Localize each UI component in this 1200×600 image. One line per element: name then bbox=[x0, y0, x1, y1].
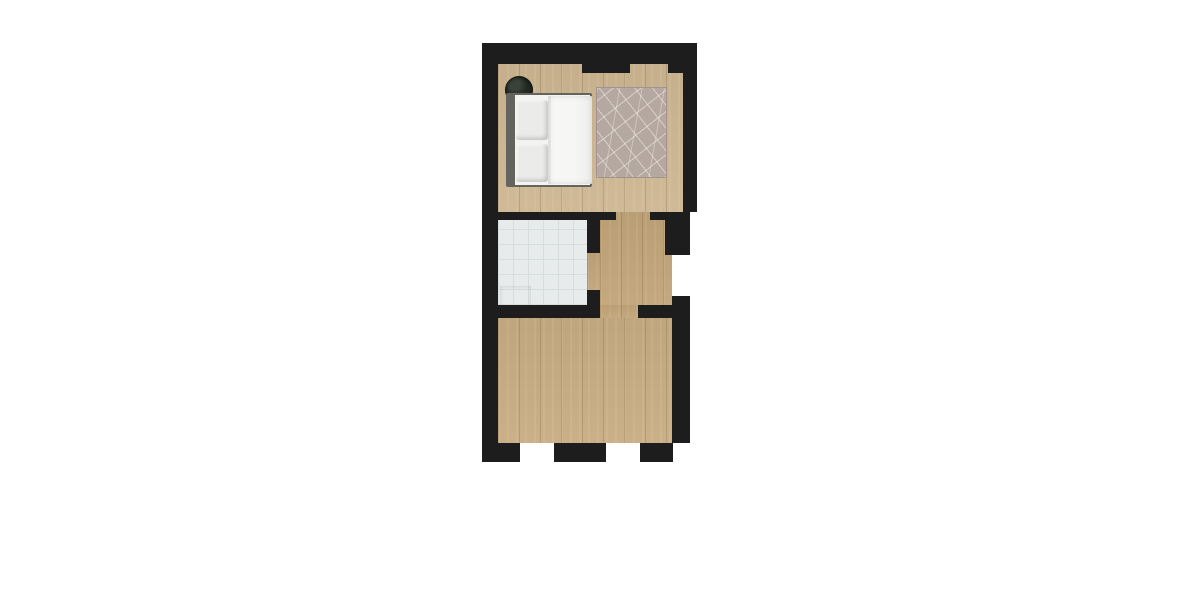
sofa-armrest-left bbox=[500, 319, 506, 354]
floorplan-canvas bbox=[0, 0, 1200, 600]
sofa-armrest-right bbox=[589, 319, 595, 354]
dining-chair-west bbox=[503, 376, 520, 395]
wardrobe bbox=[500, 187, 592, 213]
deck-window-tread bbox=[517, 453, 557, 462]
deck-door-tread bbox=[603, 453, 643, 462]
exterior-structure-bottom-arm bbox=[645, 502, 714, 516]
dining-chair-east bbox=[568, 395, 586, 415]
living-doorway-floor bbox=[600, 305, 638, 318]
wall-hall-right-lower bbox=[672, 296, 690, 318]
wall-mid-left bbox=[498, 305, 600, 318]
area-rug bbox=[596, 87, 667, 178]
wardrobe-drawer-left bbox=[522, 187, 546, 213]
console-bench bbox=[566, 426, 608, 442]
sink-faucet bbox=[573, 299, 578, 304]
wall-bathroom-right-upper bbox=[587, 212, 600, 253]
bathtub bbox=[504, 219, 587, 253]
wall-mid-right bbox=[638, 305, 672, 318]
cooktop bbox=[647, 340, 672, 374]
bathtub-faucet bbox=[574, 231, 580, 237]
toilet-bowl bbox=[507, 259, 529, 283]
dining-table bbox=[519, 376, 567, 424]
dining-chair-north bbox=[543, 360, 563, 377]
kitchen-sink bbox=[648, 395, 672, 421]
doormat-left bbox=[507, 534, 535, 544]
wall-pier-middle bbox=[582, 43, 630, 73]
wardrobe-drawer-right bbox=[546, 187, 570, 213]
bathroom-doorway-floor bbox=[587, 253, 600, 290]
deck-post-top-left bbox=[493, 463, 502, 472]
wall-bottom-left bbox=[482, 443, 520, 462]
wall-bottom-right bbox=[640, 443, 673, 462]
kitchen-faucet bbox=[661, 404, 668, 406]
exterior-structure-step bbox=[661, 494, 674, 503]
bathtub-basin bbox=[509, 222, 578, 246]
wall-left bbox=[482, 43, 498, 462]
sofa bbox=[500, 319, 595, 354]
exterior-structure-right-block bbox=[691, 487, 712, 503]
clothes-rack bbox=[666, 84, 678, 152]
bed-pillow-top bbox=[516, 100, 548, 140]
bed-pillow-bottom bbox=[516, 144, 548, 182]
wardrobe-hanging-clothes-left bbox=[500, 187, 522, 213]
bed-duvet bbox=[548, 96, 592, 184]
kitchen-faucet-base bbox=[659, 402, 662, 408]
wall-living-right bbox=[672, 318, 690, 443]
wall-bottom-middle bbox=[554, 443, 606, 462]
doormat-right bbox=[606, 534, 634, 544]
entry-threshold bbox=[671, 255, 694, 266]
double-bed bbox=[506, 93, 592, 187]
side-stool bbox=[663, 180, 685, 203]
bed-headboard bbox=[508, 95, 515, 185]
wall-hall-right-upper bbox=[665, 212, 690, 255]
hallway-floor bbox=[600, 212, 672, 305]
deck-post-bottom-right bbox=[644, 532, 653, 541]
wardrobe-hanging-clothes-right bbox=[570, 187, 592, 213]
deck-post-bottom-left bbox=[493, 532, 502, 541]
deck-planks bbox=[497, 466, 653, 540]
wall-bedroom-right bbox=[683, 43, 697, 212]
